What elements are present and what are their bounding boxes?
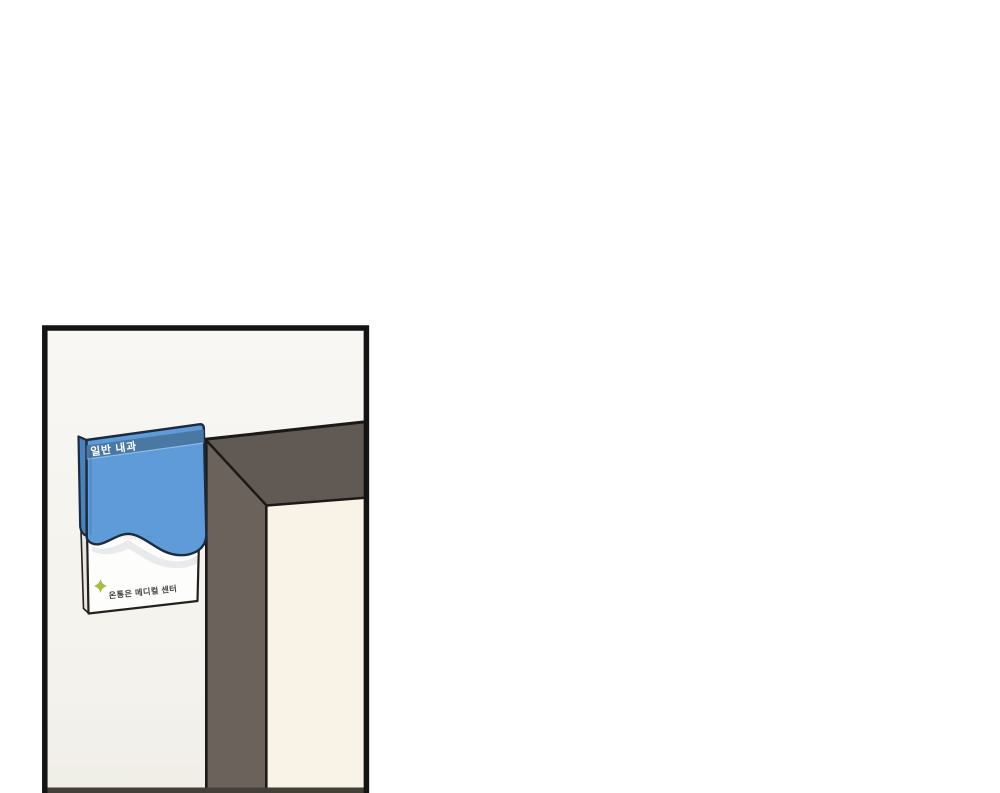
wall-doorway xyxy=(267,496,364,793)
sign-cover-side xyxy=(79,437,87,537)
floor-shadow-strip xyxy=(47,788,364,793)
panel-scene: 온통은 메디컬 센터 일반 내과 xyxy=(0,0,1000,793)
clinic-sign: 온통은 메디컬 센터 일반 내과 xyxy=(79,424,207,613)
webtoon-page: 온통은 메디컬 센터 일반 내과 xyxy=(0,0,1000,793)
